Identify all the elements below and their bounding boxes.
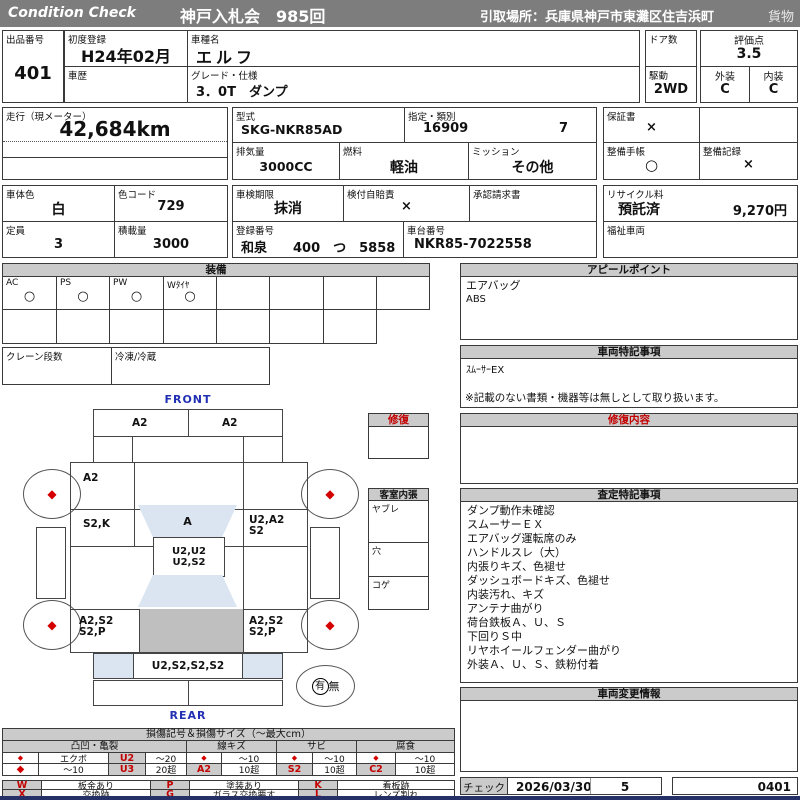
maintenance-record-label: 整備記録 bbox=[703, 144, 741, 158]
tailgate-value: U2,S2,S2,S2 bbox=[94, 661, 282, 672]
vehicle-note-line: ｽﾑｰｻｰEX bbox=[466, 361, 504, 376]
divider bbox=[188, 681, 189, 705]
roof-panel: U2,U2 U2,S2 bbox=[153, 537, 225, 577]
divider bbox=[243, 463, 244, 652]
legend-code-u3: U3 bbox=[108, 763, 146, 776]
cabin-hole-cell: 穴 bbox=[368, 542, 429, 577]
exterior-grade-label: 外装 bbox=[701, 68, 749, 83]
equipment-cell-empty bbox=[56, 309, 110, 344]
registration-number-value: 和泉 400 つ 5858 bbox=[241, 237, 395, 256]
equipment-value: ○ bbox=[110, 289, 163, 304]
assessment-box: ダンプ動作未確認 スムーサーＥＸ エアバッグ運転席のみ ハンドルスレ（大） 内張… bbox=[460, 501, 798, 683]
change-info-box bbox=[460, 700, 798, 772]
displacement-cell: 排気量 3000CC bbox=[232, 142, 340, 180]
crane-cell: クレーン段数 bbox=[2, 347, 112, 385]
fuel-cell: 燃料 軽油 bbox=[339, 142, 469, 180]
maintenance-record-value: × bbox=[700, 157, 797, 172]
change-info-title: 車両変更情報 bbox=[460, 687, 798, 701]
divider bbox=[134, 463, 135, 546]
lot-number-value: 401 bbox=[3, 63, 63, 84]
grade-value: 3．0T ダンプ bbox=[196, 81, 288, 100]
check-code-cell: 0401 bbox=[672, 777, 798, 795]
capacity-value: 3 bbox=[3, 237, 114, 252]
left-door-value: S2,K bbox=[83, 519, 110, 530]
capacity-cell: 定員 3 bbox=[2, 221, 115, 258]
rear-left-value-2: S2,P bbox=[79, 627, 106, 638]
assessment-line: アンテナ曲がり bbox=[467, 602, 621, 616]
front-pillar-left bbox=[93, 436, 133, 463]
interior-grade-cell: 内装 C bbox=[749, 66, 798, 103]
check-date-value: 2026/03/30 bbox=[516, 780, 592, 794]
mission-value: その他 bbox=[469, 157, 596, 177]
equipment-cell-empty bbox=[323, 276, 377, 310]
repair-detail-title: 修復内容 bbox=[460, 413, 798, 427]
load-capacity-label: 積載量 bbox=[118, 223, 147, 237]
recycle-fee-cell: リサイクル料 預託済 9,270円 bbox=[603, 185, 798, 222]
divider bbox=[3, 141, 227, 142]
model-code-value: SKG-NKR85AD bbox=[241, 122, 342, 137]
spare-absent-mark: 無 bbox=[329, 678, 340, 694]
interior-grade-label: 内装 bbox=[750, 68, 797, 83]
auction-title: 神戸入札会 985回 bbox=[180, 3, 325, 27]
appeal-line: ABS bbox=[466, 293, 486, 306]
roof-value-2: U2,S2 bbox=[154, 557, 224, 568]
legend-dent-size-small: ～10 bbox=[38, 763, 109, 776]
equipment-cell-empty bbox=[216, 309, 270, 344]
equipment-label: AC bbox=[6, 278, 18, 288]
grade-label: グレード・仕様 bbox=[191, 68, 258, 82]
exterior-grade-value: C bbox=[701, 82, 749, 97]
equipment-cell-wtire: Wﾀｲﾔ ○ bbox=[163, 276, 217, 310]
right-door-value-2: S2 bbox=[249, 526, 264, 537]
model-code-cell: 型式 SKG-NKR85AD bbox=[232, 107, 405, 143]
check-label-cell: チェック bbox=[460, 777, 508, 795]
check-date-cell: 2026/03/30 5 bbox=[507, 777, 662, 795]
cabin-tear-label: ヤブレ bbox=[372, 502, 399, 515]
warranty-cell: 保証書 × bbox=[603, 107, 700, 143]
exterior-grade-cell: 外装 C bbox=[700, 66, 750, 103]
wheel-damage-mark: ◆ bbox=[325, 618, 334, 632]
body-color-value: 白 bbox=[3, 199, 114, 219]
equipment-title: 装備 bbox=[2, 263, 430, 277]
fuel-label: 燃料 bbox=[343, 144, 362, 158]
legend-scratch-size-large: 10超 bbox=[221, 763, 277, 776]
equipment-cell-empty bbox=[269, 309, 324, 344]
drive-cell: 駆動 2WD bbox=[645, 66, 697, 103]
mileage-value: 42,684km bbox=[3, 117, 227, 141]
front-panel-value: A2 bbox=[83, 473, 98, 484]
recycle-status-value: 預託済 bbox=[618, 199, 660, 219]
assessment-line: エアバッグ運転席のみ bbox=[467, 532, 621, 546]
fuel-value: 軽油 bbox=[340, 157, 468, 177]
assessment-line: 荷台鉄板Ａ、Ｕ、Ｓ bbox=[467, 616, 621, 630]
load-capacity-cell: 積載量 3000 bbox=[114, 221, 228, 258]
repair-box bbox=[368, 426, 429, 459]
model-name-value: エルフ bbox=[196, 44, 256, 68]
welfare-vehicle-cell: 福祉車両 bbox=[603, 221, 798, 258]
front-label: FRONT bbox=[93, 393, 283, 406]
vehicle-notes-title: 車両特記事項 bbox=[460, 345, 798, 359]
equipment-label: PS bbox=[60, 278, 71, 288]
assessment-line: ダッシュボードキズ、色褪せ bbox=[467, 574, 621, 588]
rear-bumper bbox=[93, 680, 283, 706]
front-bumper-right-value: A2 bbox=[222, 418, 237, 429]
approval-request-cell: 承認請求書 bbox=[469, 185, 597, 222]
bottom-border-strip bbox=[0, 796, 800, 800]
equipment-cell-empty bbox=[323, 309, 377, 344]
recycle-fee-value: 9,270円 bbox=[733, 200, 787, 219]
load-capacity-value: 3000 bbox=[115, 237, 227, 252]
check-number-value: 5 bbox=[590, 780, 660, 794]
history-label: 車歴 bbox=[68, 68, 87, 82]
mission-cell: ミッション その他 bbox=[468, 142, 597, 180]
chassis-number-value: NKR85-7022558 bbox=[414, 237, 532, 252]
legend-code-c2: C2 bbox=[356, 763, 396, 776]
history-cell: 車歴 bbox=[64, 66, 188, 103]
assessment-line: 外装Ａ、Ｕ、Ｓ、鉄粉付着 bbox=[467, 658, 621, 672]
equipment-value: ○ bbox=[57, 289, 109, 304]
legend-dent-large-diamond: ◆ bbox=[2, 763, 39, 776]
score-cell: 評価点 3.5 bbox=[700, 30, 798, 67]
legend-rust-size-large: 10超 bbox=[312, 763, 357, 776]
cargo-bed bbox=[139, 609, 243, 652]
assessment-line: スムーサーＥＸ bbox=[467, 518, 621, 532]
maintenance-book-cell: 整備手帳 ○ bbox=[603, 142, 700, 180]
chassis-number-label: 車台番号 bbox=[407, 223, 445, 237]
crane-label: クレーン段数 bbox=[6, 349, 63, 363]
wheel-front-right: ◆ bbox=[301, 469, 359, 519]
inspection-value: 抹消 bbox=[233, 198, 343, 218]
model-name-cell: 車種名 エルフ bbox=[187, 30, 640, 67]
spare-present-mark: 有 bbox=[312, 678, 329, 695]
equipment-cell-ps: PS ○ bbox=[56, 276, 110, 310]
legend-code-s2: S2 bbox=[276, 763, 313, 776]
tailgate-strip: U2,S2,S2,S2 bbox=[93, 653, 283, 679]
damage-diagram: FRONT A2 A2 ◆ ◆ ◆ ◆ A2 S2,K U2,A2 S2 bbox=[20, 393, 370, 733]
windshield: A bbox=[138, 505, 237, 537]
assessment-line: 下回りＳ中 bbox=[467, 630, 621, 644]
displacement-value: 3000CC bbox=[233, 159, 339, 174]
reefer-label: 冷凍/冷蔵 bbox=[115, 349, 156, 363]
rear-window bbox=[138, 575, 237, 607]
registration-number-cell: 登録番号 和泉 400 つ 5858 bbox=[232, 221, 404, 258]
wheel-damage-mark: ◆ bbox=[47, 618, 56, 632]
model-code-label: 型式 bbox=[236, 109, 255, 123]
equipment-value: ○ bbox=[164, 289, 216, 304]
score-value: 3.5 bbox=[701, 46, 797, 62]
equipment-cell-ac: AC ○ bbox=[2, 276, 57, 310]
lot-number-cell: 出品番号 401 bbox=[2, 30, 64, 103]
auction-condition-sheet: Condition Check 神戸入札会 985回 引取場所：兵庫県神戸市東灘… bbox=[0, 0, 800, 800]
chassis-number-cell: 車台番号 NKR85-7022558 bbox=[403, 221, 597, 258]
front-bumper-left-value: A2 bbox=[132, 418, 147, 429]
color-code-value: 729 bbox=[115, 199, 227, 214]
equipment-label: PW bbox=[113, 278, 127, 288]
color-code-cell: 色コード 729 bbox=[114, 185, 228, 222]
assessment-line: リヤホイールフェンダー曲がり bbox=[467, 644, 621, 658]
first-registration-cell: 初度登録 H24年02月 bbox=[64, 30, 188, 67]
doors-cell: ドア数 bbox=[645, 30, 697, 67]
interior-grade-value: C bbox=[750, 82, 797, 97]
check-label: チェック bbox=[461, 780, 507, 795]
appeal-title: アピールポイント bbox=[460, 263, 798, 277]
front-bumper: A2 A2 bbox=[93, 409, 283, 437]
lot-number-label: 出品番号 bbox=[6, 32, 44, 46]
equipment-cell-empty bbox=[216, 276, 270, 310]
check-code-value: 0401 bbox=[758, 780, 791, 794]
doors-label: ドア数 bbox=[649, 32, 678, 46]
registration-number-label: 登録番号 bbox=[236, 223, 274, 237]
grade-cell: グレード・仕様 3．0T ダンプ bbox=[187, 66, 640, 103]
equipment-cell-empty bbox=[163, 309, 217, 344]
side-gate-left bbox=[36, 527, 66, 599]
assessment-title: 査定特記事項 bbox=[460, 488, 798, 502]
legend-dent-size-u3: 20超 bbox=[145, 763, 187, 776]
vehicle-notes-disclaimer: ※記載のない書類・機器等は無しとして取り扱います。 bbox=[465, 390, 724, 405]
displacement-label: 排気量 bbox=[236, 144, 265, 158]
roof-value-1: U2,U2 bbox=[154, 546, 224, 557]
legend-corrosion-size-large: 10超 bbox=[395, 763, 455, 776]
repair-detail-box bbox=[460, 426, 798, 484]
rear-right-value-2: S2,P bbox=[249, 627, 276, 638]
equipment-cell-empty bbox=[109, 309, 164, 344]
vehicle-notes-box: ｽﾑｰｻｰEX ※記載のない書類・機器等は無しとして取り扱います。 bbox=[460, 358, 798, 408]
legend-code-a2: A2 bbox=[186, 763, 222, 776]
wheel-damage-mark: ◆ bbox=[325, 487, 334, 501]
repair-title: 修復 bbox=[368, 413, 429, 427]
spare-tire-indicator: 有 無 bbox=[296, 665, 355, 707]
cabin-hole-label: 穴 bbox=[372, 544, 381, 557]
score-label: 評価点 bbox=[701, 32, 797, 47]
equipment-cell-empty bbox=[376, 276, 430, 310]
front-pillar-right bbox=[243, 436, 283, 463]
equipment-cell-pw: PW ○ bbox=[109, 276, 164, 310]
class-value-2: 7 bbox=[559, 121, 568, 136]
cabin-burn-cell: コゲ bbox=[368, 576, 429, 610]
maintenance-record-cell: 整備記録 × bbox=[699, 142, 798, 180]
capacity-label: 定員 bbox=[6, 223, 25, 237]
inspection-cell: 車検期限 抹消 bbox=[232, 185, 344, 222]
class-value-1: 16909 bbox=[423, 121, 468, 136]
mileage-cell: 走行（現メーター） 42,684km bbox=[2, 107, 228, 180]
appeal-box: エアバッグ ABS bbox=[460, 276, 798, 340]
divider bbox=[188, 410, 189, 436]
wheel-damage-mark: ◆ bbox=[47, 487, 56, 501]
insurance-value: × bbox=[344, 199, 469, 214]
welfare-vehicle-label: 福祉車両 bbox=[607, 223, 645, 237]
assessment-line: 内装汚れ、キズ bbox=[467, 588, 621, 602]
equipment-cell-empty bbox=[2, 309, 57, 344]
warranty-value: × bbox=[604, 120, 699, 135]
assessment-line: ハンドルスレ（大） bbox=[467, 546, 621, 560]
category-badge: 貨物 bbox=[768, 6, 794, 25]
approval-request-label: 承認請求書 bbox=[473, 187, 521, 201]
equipment-value: ○ bbox=[3, 289, 56, 304]
side-gate-right bbox=[310, 527, 340, 599]
assessment-line: 内張りキズ、色褪せ bbox=[467, 560, 621, 574]
drive-value: 2WD bbox=[646, 82, 696, 97]
wheel-rear-right: ◆ bbox=[301, 600, 359, 650]
brand-logo: Condition Check bbox=[8, 5, 136, 21]
cabin-burn-label: コゲ bbox=[372, 578, 390, 591]
drive-label: 駆動 bbox=[649, 68, 668, 82]
insurance-cell: 検付自賠責 × bbox=[343, 185, 470, 222]
divider bbox=[3, 157, 227, 158]
warranty-extra-cell bbox=[699, 107, 798, 143]
appeal-line: エアバッグ bbox=[466, 279, 521, 293]
class-cell: 指定・類別 16909 7 bbox=[404, 107, 597, 143]
body-color-cell: 車体色 白 bbox=[2, 185, 115, 222]
equipment-cell-empty bbox=[269, 276, 324, 310]
maintenance-book-value: ○ bbox=[604, 156, 699, 174]
title-bar: Condition Check 神戸入札会 985回 引取場所：兵庫県神戸市東灘… bbox=[0, 0, 800, 27]
mission-label: ミッション bbox=[472, 144, 520, 158]
assessment-line: ダンプ動作未確認 bbox=[467, 504, 621, 518]
rear-label: REAR bbox=[93, 709, 283, 722]
cabin-tear-cell: ヤブレ bbox=[368, 500, 429, 543]
reefer-cell: 冷凍/冷蔵 bbox=[111, 347, 270, 385]
pickup-location: 引取場所：兵庫県神戸市東灘区住吉浜町 bbox=[480, 6, 714, 25]
first-registration-value: H24年02月 bbox=[65, 43, 187, 67]
